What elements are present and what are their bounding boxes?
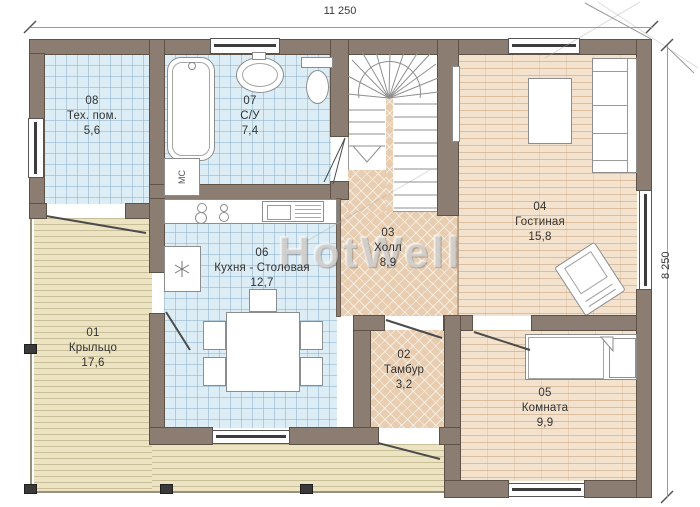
wall [532,316,651,330]
room-area: 5,6 [32,124,152,139]
sofa [592,58,637,173]
stove-burner [220,204,228,212]
room-name: Тамбур [346,363,462,378]
sofa-cushion-line [593,105,627,106]
window [212,430,290,444]
washing-machine: МС [164,158,200,196]
porch-post [24,484,37,494]
open-door-leaf [452,66,460,142]
room-label-kitchen: 06 Кухня - Столовая 12,7 [177,246,347,292]
window-sill [644,194,647,286]
sofa-back-line [627,59,628,172]
room-number: 07 [192,94,308,109]
chair [203,357,226,386]
room-label-vestibule: 02 Тамбур 3,2 [346,348,462,394]
stove-burner [219,212,229,222]
sofa-armrest-line [593,160,627,161]
room-number: 01 [33,326,153,341]
wall [30,204,46,218]
room-label-hall: 03 Холл 8,9 [330,226,446,272]
dining-table [226,312,300,392]
window [508,38,580,54]
washing-machine-label: МС [177,170,187,184]
wall [440,428,460,444]
wall [150,428,212,444]
toilet-tank [301,57,333,68]
dimension-label-top: 11 250 [290,5,390,17]
window-sill [512,488,581,491]
window [210,38,280,54]
wall [445,481,508,497]
room-area: 9,9 [487,416,603,431]
room-label-living: 04 Гостиная 15,8 [482,200,598,246]
wall [637,290,651,497]
room-number: 04 [482,200,598,215]
stair-landing-floor [348,170,386,212]
chair [300,357,323,386]
room-area: 15,8 [482,230,598,245]
toilet-bowl [306,70,329,104]
room-number: 03 [330,226,446,241]
wall [331,182,348,199]
window [639,190,652,290]
room-name: Холл [330,241,446,256]
wall [150,199,164,272]
stair-gap-strip [386,98,393,212]
bed-pillow [609,338,636,378]
window-sill [214,44,276,47]
stove-burner [195,212,207,224]
chair [249,289,277,312]
room-label-bedroom: 05 Комната 9,9 [487,386,603,432]
room-name: Тех. пом. [32,109,152,124]
room-area: 7,4 [192,124,308,139]
floor-plan: МС [0,0,700,507]
kitchen-sink-basin [267,205,291,220]
room-number: 06 [177,246,347,261]
room-label-porch: 01 Крыльцо 17,6 [33,326,153,372]
room-name: Гостиная [482,215,598,230]
sink-tap [252,52,266,60]
room-name: С/У [192,109,308,124]
chair [203,321,226,350]
sofa-cushion-line [593,133,627,134]
window [508,483,585,497]
wall [331,40,348,136]
sink-basin [242,63,278,87]
bed-mattress [528,337,604,379]
wall [445,316,460,497]
window-sill [512,44,576,47]
room-number: 02 [346,348,462,363]
kitchen-sink-drainer [295,205,321,218]
wall [354,316,384,330]
coffee-table [528,78,572,144]
room-number: 08 [32,94,152,109]
room-label-utility: 08 Тех. пом. 5,6 [32,94,152,140]
floor-boundary [457,215,459,316]
room-area: 8,9 [330,256,446,271]
room-label-bathroom: 07 С/У 7,4 [192,94,308,140]
wall [637,40,651,190]
room-name: Крыльцо [33,341,153,356]
bathtub-faucet [188,62,196,70]
armchair-seat [564,251,608,294]
bathroom-sink [236,57,284,93]
kitchen-sink [262,201,324,222]
room-area: 17,6 [33,356,153,371]
room-number: 05 [487,386,603,401]
window-sill [216,435,286,438]
sofa-armrest-line [593,71,627,72]
bed [525,334,637,380]
dimension-label-right: 8 250 [660,222,682,308]
porch-post [300,484,313,494]
wall [290,428,378,444]
room-area: 12,7 [177,276,347,291]
room-name: Комната [487,401,603,416]
room-area: 3,2 [346,378,462,393]
porch-post [160,484,173,494]
chair [300,321,323,350]
dimension-line-top [30,27,652,28]
room-name: Кухня - Столовая [177,261,347,276]
